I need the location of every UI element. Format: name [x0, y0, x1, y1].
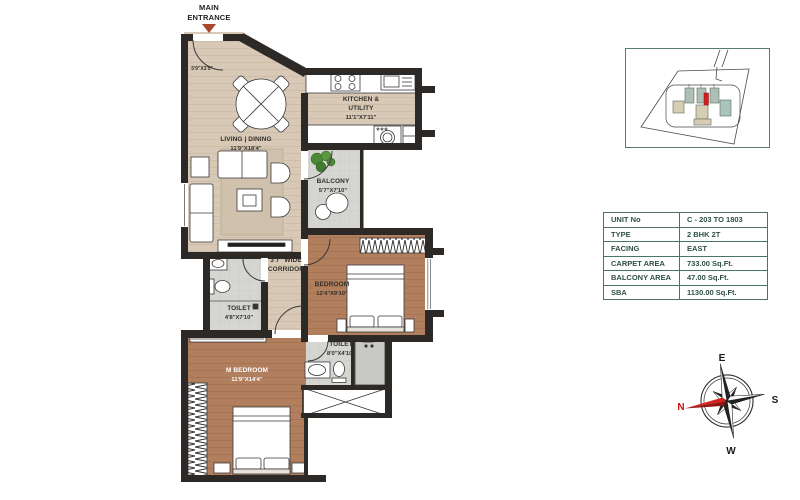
table-row: CARPET AREA 733.00 Sq.Ft.	[604, 256, 768, 271]
compass-north-label: N	[677, 402, 684, 413]
bedroom-window	[425, 258, 433, 310]
row-value: 2 BHK 2T	[680, 227, 768, 242]
room-label-balcony: BALCONY 5'7"X7'10"	[304, 178, 362, 195]
floor-plan-page: MAIN ENTRANCE 5'9"X3'5" LIVING | DINING …	[0, 0, 800, 500]
row-label: TYPE	[604, 227, 680, 242]
table-row: BALCONY AREA 47.00 Sq.Ft.	[604, 271, 768, 286]
key-plan	[625, 48, 770, 148]
row-label: BALCONY AREA	[604, 271, 680, 286]
compass-south-label: S	[772, 395, 779, 406]
room-label-toilet1: TOILET 4'8"X7'10"	[212, 305, 266, 322]
duct-void	[303, 388, 388, 416]
row-value: EAST	[680, 242, 768, 257]
table-row: UNIT No C - 203 TO 1803	[604, 213, 768, 228]
row-value: 733.00 Sq.Ft.	[680, 256, 768, 271]
tower-footprints	[673, 84, 731, 125]
unit-info-table: UNIT No C - 203 TO 1803 TYPE 2 BHK 2T FA…	[603, 212, 768, 300]
master-wardrobe	[188, 383, 207, 476]
table-row: TYPE 2 BHK 2T	[604, 227, 768, 242]
row-value: 1130.00 Sq.Ft.	[680, 285, 768, 300]
row-label: FACING	[604, 242, 680, 257]
compass-west-label: W	[726, 446, 736, 457]
site-road	[714, 50, 728, 81]
room-label-bedroom: BEDROOM 12'4"X9'10"	[300, 281, 364, 298]
room-label-foyer: 5'9"X3'5"	[180, 66, 224, 73]
entrance-arrow-icon	[202, 24, 216, 33]
compass-icon: E S W N	[672, 350, 784, 458]
coffee-table	[237, 189, 262, 211]
room-label-living-dining: LIVING | DINING 11'9"X18'4"	[188, 136, 304, 153]
floor-plan-drawing	[0, 0, 470, 500]
table-row: SBA 1130.00 Sq.Ft.	[604, 285, 768, 300]
highlighted-unit	[704, 93, 709, 105]
key-plan-drawing	[626, 49, 769, 147]
compass-rose: E S W N	[672, 350, 784, 463]
dining-set	[232, 75, 290, 133]
table-row: FACING EAST	[604, 242, 768, 257]
tv-unit	[218, 240, 292, 252]
room-label-toilet2: TOILET 8'0"X4'10"	[315, 341, 367, 358]
main-entrance-label: MAIN ENTRANCE	[178, 3, 240, 23]
room-label-corridor: 3'7" WIDE CORRIDOR	[258, 257, 314, 275]
compass-east-label: E	[719, 353, 726, 364]
bedroom-bed	[337, 265, 414, 332]
room-label-kitchen: KITCHEN & UTILITY 11'1"X7'11"	[331, 96, 391, 122]
row-value: C - 203 TO 1803	[680, 213, 768, 228]
room-label-master-bedroom: M BEDROOM 11'9"X14'4"	[200, 367, 294, 384]
row-label: CARPET AREA	[604, 256, 680, 271]
row-label: SBA	[604, 285, 680, 300]
site-boundary	[641, 69, 749, 144]
row-value: 47.00 Sq.Ft.	[680, 271, 768, 286]
bedroom-wardrobe	[360, 238, 426, 253]
row-label: UNIT No	[604, 213, 680, 228]
